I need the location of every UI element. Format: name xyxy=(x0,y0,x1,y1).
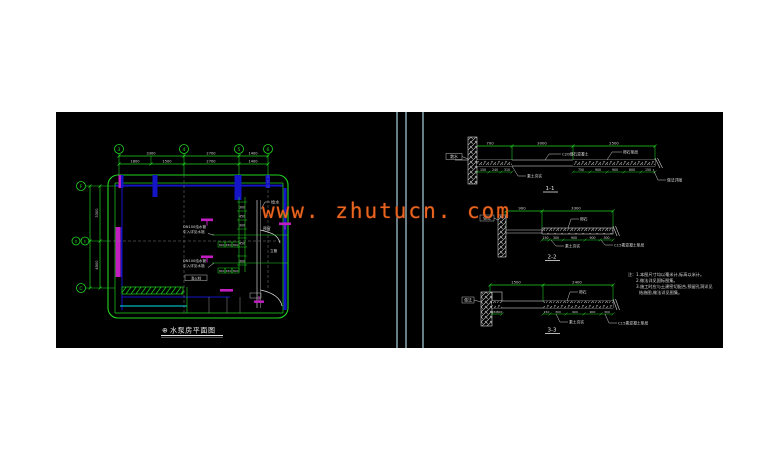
grid-label: 6 xyxy=(267,147,270,153)
notes-prefix: 注: xyxy=(628,271,634,278)
plan-left-grid: F D E C 3300 4500 xyxy=(72,182,115,293)
pipe-label: 预留 xyxy=(263,226,271,231)
section-title: 3-3 xyxy=(548,328,557,334)
notes-line: 结施图,做法详见图集。 xyxy=(639,289,682,296)
dim-text: 300 xyxy=(555,310,561,314)
cad-drawing: 3 4 5 6 3300 2700 1400 1800 1500 2700 14… xyxy=(56,112,723,348)
leader-label: 散水 xyxy=(450,154,458,159)
section-1-1: 700 3000 2500 150 240 310 75 xyxy=(446,137,682,192)
dim-text: 3300 xyxy=(146,152,156,156)
dim-text: 300 xyxy=(497,310,503,314)
dim-text: 900 xyxy=(571,236,577,240)
dim-text: 900 xyxy=(595,168,601,172)
valve-symbols xyxy=(201,219,291,303)
dim-text: 300 xyxy=(553,236,559,240)
dim-text: 1800 xyxy=(130,160,140,164)
dim-text: 3300 xyxy=(95,208,99,218)
dim-text: 600 xyxy=(629,168,635,172)
dim-text: 150 xyxy=(542,236,548,240)
pipe-curve xyxy=(261,290,283,306)
notes-line: 2.做法详见国标图集。 xyxy=(636,277,678,284)
dim-text: 450 xyxy=(239,242,245,246)
dim-text: 300 xyxy=(219,243,225,247)
dim-text: 900 xyxy=(589,236,595,240)
dim-text: 300 xyxy=(603,236,609,240)
plan-top-grid: 3 4 5 6 3300 2700 1400 1800 1500 2700 14… xyxy=(115,145,273,176)
dim-text: 3300 xyxy=(571,206,581,211)
dim-text: 150 xyxy=(645,168,651,172)
grid-label: D xyxy=(75,240,78,244)
leader-label: C15素混凝土垫层 xyxy=(618,321,648,326)
pipe-label: 引入详见水施 xyxy=(183,229,205,234)
dim-text: 900 xyxy=(590,310,596,314)
page: { "watermark": { "text": "www. zhutucn. … xyxy=(0,0,776,463)
plan-title-text: 水泵房平面图 xyxy=(170,326,216,335)
grid-label: 3 xyxy=(118,147,121,153)
dim-text: 150 xyxy=(480,168,486,172)
watermark-text: www. zhutucn. com xyxy=(262,199,511,223)
plan-title-symbol: ⊕ xyxy=(162,327,168,335)
pipe-label: 立管 xyxy=(270,248,278,253)
dim-text: 900 xyxy=(612,168,618,172)
pipe-label: 消火栓 xyxy=(191,275,202,280)
section-3-3: 1500 2400 做法 卵石 150 300 150 xyxy=(462,280,648,334)
dim-text: 300 xyxy=(604,310,610,314)
cad-drawing-canvas: www. zhutucn. com xyxy=(56,112,723,348)
wall-section xyxy=(481,292,492,326)
leader-label: 卵石垫层 xyxy=(623,150,638,155)
slab-section xyxy=(542,228,613,234)
dim-text: 3000 xyxy=(537,141,547,146)
pipe-label: DN100给水管 xyxy=(183,224,207,229)
dim-text: 900 xyxy=(572,310,578,314)
leader-label: 素土夯实 xyxy=(565,244,580,249)
dim-text: 4500 xyxy=(95,260,99,270)
section-title: 1-1 xyxy=(546,186,555,192)
leader-label: 卵石 xyxy=(579,290,587,295)
dim-text: 2700 xyxy=(206,160,216,164)
dim-text: 1500 xyxy=(162,160,172,164)
dim-text: 900 xyxy=(518,206,526,211)
dim-text: 450 xyxy=(226,243,232,247)
dim-text: 700 xyxy=(486,141,494,146)
dim-text: 300 xyxy=(219,269,225,273)
dim-text: 240 xyxy=(492,168,498,172)
dim-text: 300 xyxy=(239,206,245,210)
wall-section xyxy=(468,137,477,184)
notes-line: 3.施工时应与土建密切配合,预留孔洞详见 xyxy=(636,283,713,290)
dim-text: 300 xyxy=(239,224,245,228)
grid-label: F xyxy=(80,184,83,190)
leader-label: 素土夯实 xyxy=(527,174,542,179)
door-strip xyxy=(116,227,121,277)
dim-text: 150 xyxy=(544,310,550,314)
dim-text: 300 xyxy=(233,269,239,273)
plan-title: ⊕ 水泵房平面图 xyxy=(161,326,223,338)
dim-text: 450 xyxy=(239,215,245,219)
dim-text: 310 xyxy=(504,168,510,172)
pipe-label: 引入详见水施 xyxy=(183,263,205,268)
grid-label: 4 xyxy=(183,147,186,153)
dim-text: 1400 xyxy=(248,160,258,164)
leader-label: 做法详图 xyxy=(667,178,682,183)
dim-text: 1500 xyxy=(511,280,521,285)
dim-text: 2400 xyxy=(572,280,582,285)
top-wall xyxy=(115,185,283,187)
grid-label: E xyxy=(84,240,87,244)
dim-text: 1400 xyxy=(248,152,258,156)
grid-label: C xyxy=(79,286,82,292)
leader-label: 卵石 xyxy=(580,217,588,222)
dim-text: 2700 xyxy=(206,152,216,156)
leader-label: 做法 xyxy=(464,298,472,303)
dim-text: 750 xyxy=(578,168,584,172)
ramp-hatch xyxy=(122,287,183,294)
pipe-label: DN100给水管 xyxy=(183,258,207,263)
dim-text: 2500 xyxy=(609,141,619,146)
grid-label: 5 xyxy=(238,147,241,153)
dim-text: 450 xyxy=(226,269,232,273)
dim-text: 300 xyxy=(233,243,239,247)
section-title: 2-2 xyxy=(548,255,557,261)
leader-label: 素土夯实 xyxy=(569,320,584,325)
leader-label: C15素混凝土垫层 xyxy=(614,243,644,248)
leader-label: C20细石混凝土 xyxy=(562,152,589,157)
notes-block: 注: 1.本图尺寸均以毫米计,标高以米计。 2.做法详见国标图集。 3.施工时应… xyxy=(628,271,713,296)
notes-line: 1.本图尺寸均以毫米计,标高以米计。 xyxy=(636,271,704,278)
match-lines xyxy=(397,112,423,348)
